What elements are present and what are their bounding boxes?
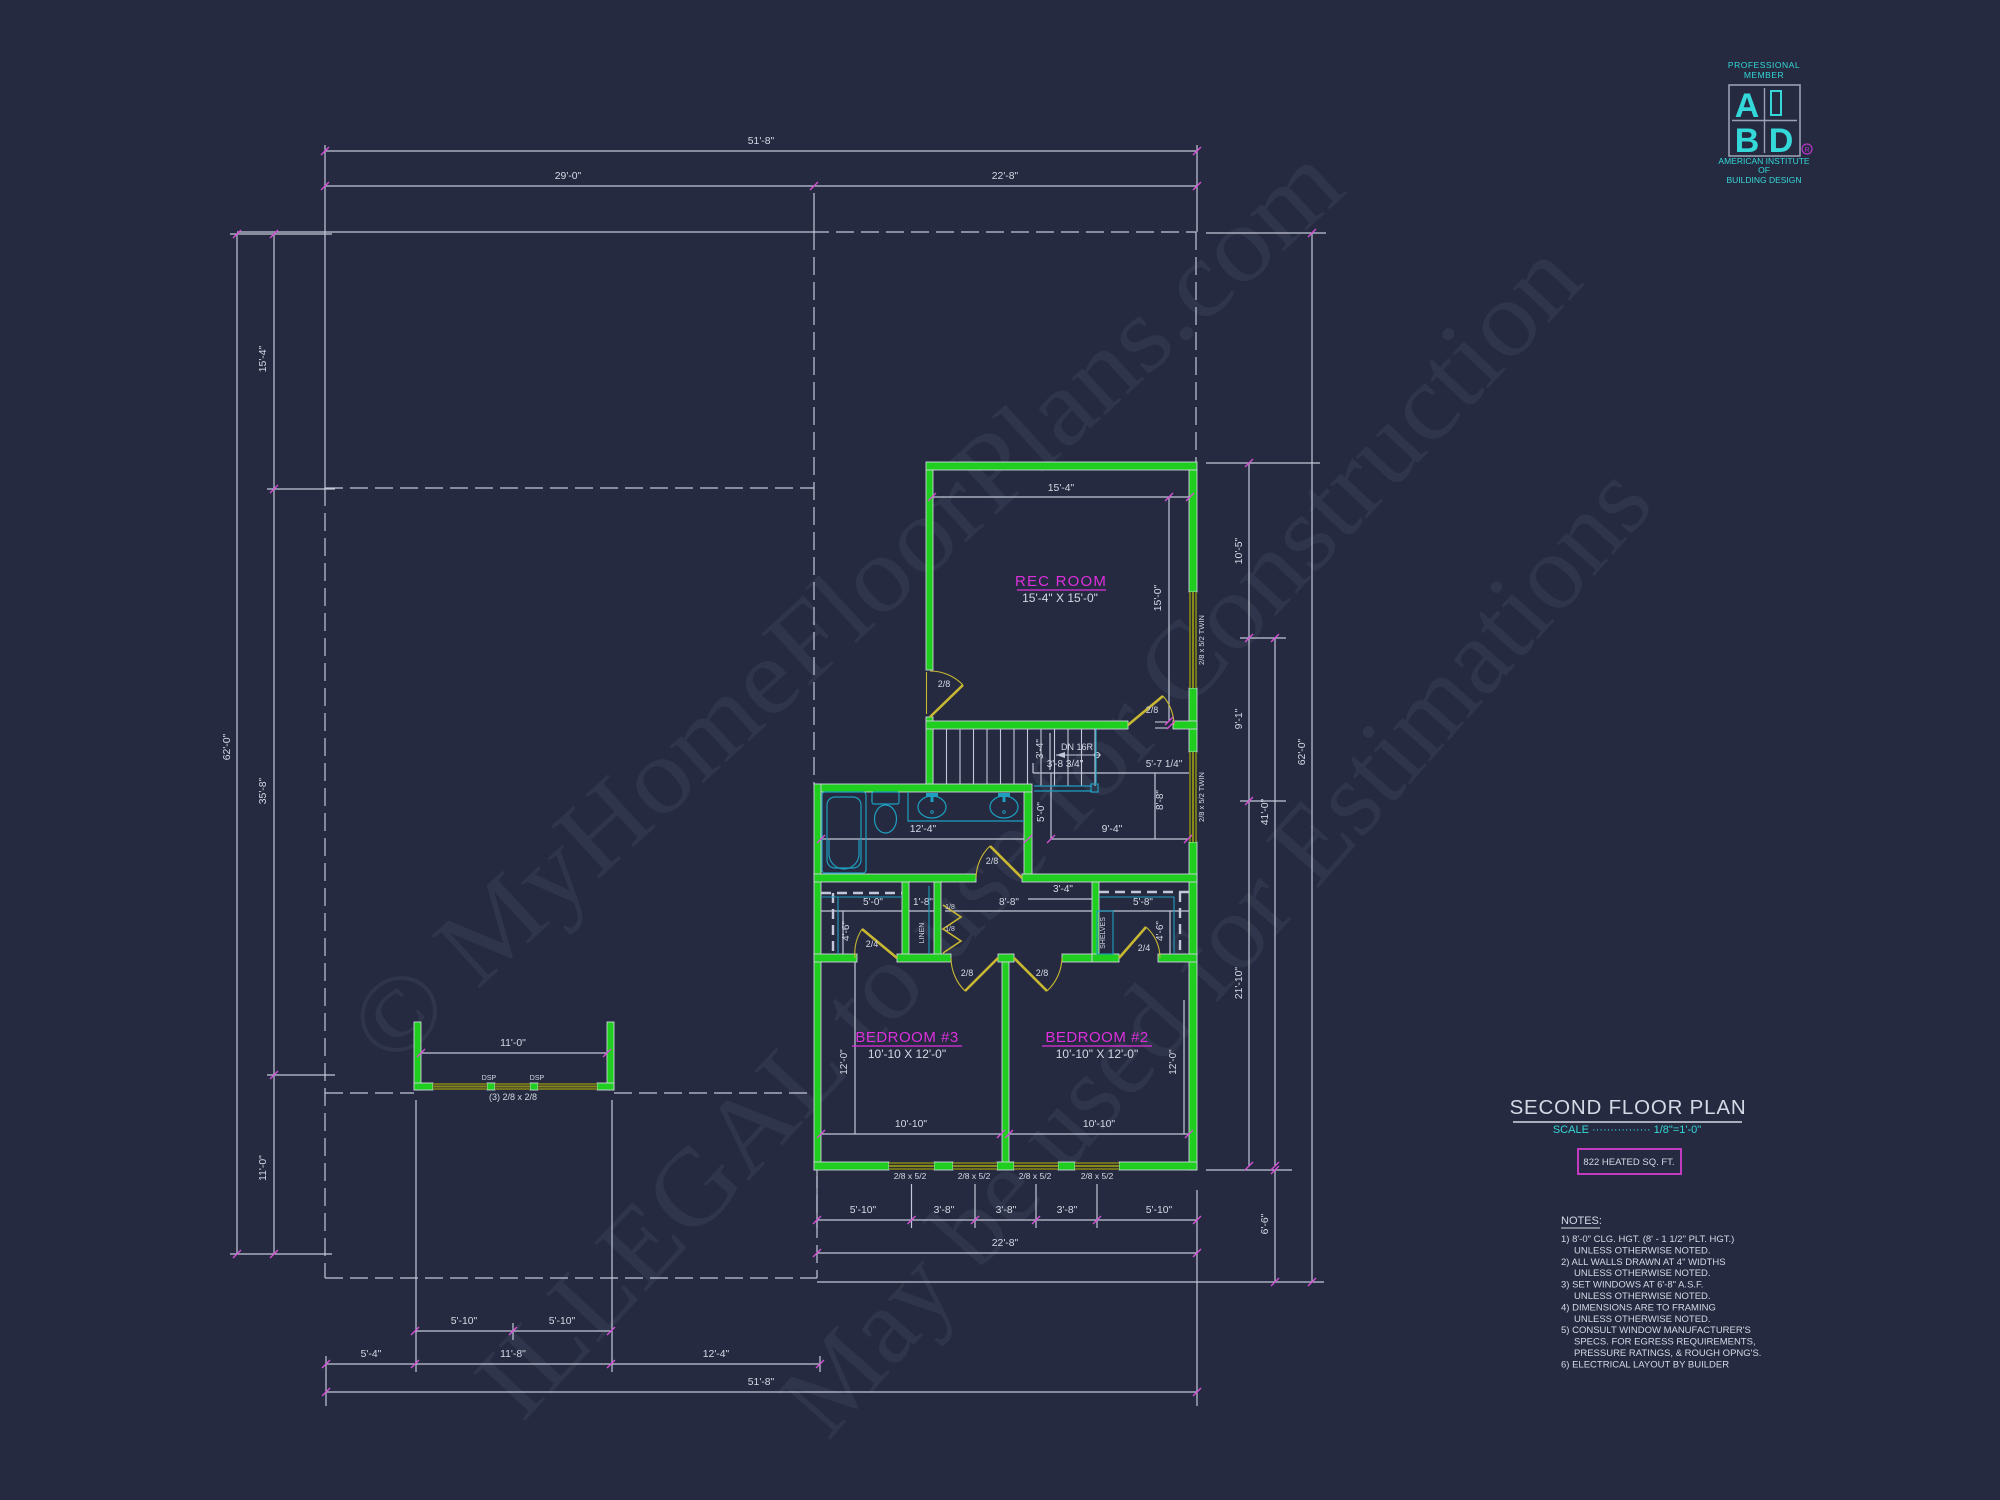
svg-text:10'-10": 10'-10": [895, 1119, 928, 1130]
svg-text:1'-8": 1'-8": [913, 897, 933, 908]
svg-text:3'-8": 3'-8": [934, 1205, 955, 1216]
svg-text:SPECS. FOR EGRESS REQUIREMENTS: SPECS. FOR EGRESS REQUIREMENTS,: [1574, 1337, 1756, 1348]
svg-text:11'-0": 11'-0": [500, 1038, 526, 1049]
svg-text:BEDROOM #2: BEDROOM #2: [1045, 1029, 1148, 1046]
svg-text:10'-10": 10'-10": [1083, 1119, 1116, 1130]
svg-text:2/8: 2/8: [1146, 705, 1159, 715]
svg-text:1) 8'-0" CLG. HGT. (8' - 1 1/: 1) 8'-0" CLG. HGT. (8' - 1 1/2" PLT. HGT…: [1561, 1234, 1734, 1245]
svg-text:41'-0": 41'-0": [1260, 798, 1271, 825]
svg-text:BUILDING DESIGN: BUILDING DESIGN: [1726, 175, 1801, 185]
svg-text:DN 16R: DN 16R: [1061, 742, 1094, 752]
svg-text:5) CONSULT WINDOW MANUFACTURER: 5) CONSULT WINDOW MANUFACTURER'S: [1561, 1325, 1751, 1336]
svg-text:12'-0": 12'-0": [839, 1049, 850, 1075]
svg-text:4'-6": 4'-6": [841, 921, 852, 941]
svg-text:UNLESS OTHERWISE NOTED.: UNLESS OTHERWISE NOTED.: [1574, 1268, 1711, 1279]
svg-text:5'-0": 5'-0": [863, 897, 883, 908]
svg-text:2/8 x 5/2: 2/8 x 5/2: [894, 1171, 927, 1181]
svg-text:62'-0": 62'-0": [1297, 738, 1308, 765]
svg-text:15'-0": 15'-0": [1153, 584, 1164, 611]
svg-text:5'-10": 5'-10": [850, 1205, 877, 1216]
svg-text:11'-0": 11'-0": [258, 1155, 269, 1181]
svg-text:A: A: [1735, 87, 1760, 125]
svg-text:35'-8": 35'-8": [258, 777, 269, 804]
svg-text:5'-4": 5'-4": [361, 1349, 382, 1360]
svg-text:51'-8": 51'-8": [748, 136, 775, 147]
svg-text:8'-8": 8'-8": [1155, 790, 1166, 810]
svg-text:21'-10": 21'-10": [1234, 967, 1245, 1000]
svg-text:5'-7 1/4": 5'-7 1/4": [1146, 759, 1183, 770]
svg-text:2/8 x 5/2 TWIN: 2/8 x 5/2 TWIN: [1197, 615, 1206, 665]
svg-text:9'-4": 9'-4": [1102, 824, 1123, 835]
svg-text:9'-1": 9'-1": [1234, 708, 1245, 729]
svg-text:822 HEATED SQ. FT.: 822 HEATED SQ. FT.: [1583, 1157, 1674, 1168]
svg-text:12'-4": 12'-4": [910, 824, 937, 835]
svg-text:2/8 x 5/2: 2/8 x 5/2: [958, 1171, 991, 1181]
svg-text:2/4: 2/4: [866, 939, 879, 949]
svg-text:22'-8": 22'-8": [992, 171, 1019, 182]
svg-text:22'-8": 22'-8": [992, 1238, 1019, 1249]
svg-text:2/8 x 5/2: 2/8 x 5/2: [1081, 1171, 1114, 1181]
svg-text:2/8: 2/8: [938, 679, 951, 689]
svg-text:15'-4" X 15'-0": 15'-4" X 15'-0": [1022, 591, 1098, 605]
svg-text:DSP: DSP: [530, 1075, 545, 1082]
svg-text:62'-0": 62'-0": [222, 733, 233, 760]
svg-text:5'-10": 5'-10": [451, 1316, 478, 1327]
svg-text:BEDROOM #3: BEDROOM #3: [855, 1029, 958, 1046]
svg-text:PRESSURE RATINGS, & ROUGH OPNG: PRESSURE RATINGS, & ROUGH OPNG'S.: [1574, 1348, 1761, 1359]
svg-text:UNLESS OTHERWISE NOTED.: UNLESS OTHERWISE NOTED.: [1574, 1245, 1711, 1256]
svg-text:29'-0": 29'-0": [555, 171, 582, 182]
svg-text:B: B: [1735, 122, 1760, 160]
svg-text:51'-8": 51'-8": [748, 1377, 775, 1388]
svg-text:12'-4": 12'-4": [703, 1349, 730, 1360]
svg-text:10'-5": 10'-5": [1234, 537, 1245, 564]
svg-text:4'-6": 4'-6": [1155, 921, 1166, 941]
svg-text:6'-6": 6'-6": [1260, 1213, 1271, 1234]
svg-text:1/8: 1/8: [945, 926, 955, 933]
svg-text:SHELVES: SHELVES: [1100, 917, 1107, 949]
svg-text:12'-0": 12'-0": [1168, 1049, 1179, 1075]
svg-text:D: D: [1769, 122, 1794, 160]
svg-text:3'-8 3/4": 3'-8 3/4": [1047, 759, 1084, 770]
svg-text:(3) 2/8 x 2/8: (3) 2/8 x 2/8: [489, 1092, 537, 1102]
svg-text:2) ALL WALLS DRAWN AT 4" WIDTH: 2) ALL WALLS DRAWN AT 4" WIDTHS: [1561, 1257, 1726, 1268]
svg-text:2/8 x 5/2 TWIN: 2/8 x 5/2 TWIN: [1197, 772, 1206, 822]
svg-text:PROFESSIONAL: PROFESSIONAL: [1728, 60, 1800, 70]
svg-text:6) ELECTRICAL LAYOUT BY BUILDE: 6) ELECTRICAL LAYOUT BY BUILDER: [1561, 1359, 1729, 1370]
svg-text:5'-0": 5'-0": [1036, 802, 1047, 822]
svg-text:15'-4": 15'-4": [1048, 483, 1075, 494]
svg-text:4) DIMENSIONS ARE TO FRAMING: 4) DIMENSIONS ARE TO FRAMING: [1561, 1302, 1716, 1313]
svg-text:10'-10" X 12'-0": 10'-10" X 12'-0": [1056, 1047, 1138, 1061]
svg-text:3) SET WINDOWS AT 6'-8" A.S.F.: 3) SET WINDOWS AT 6'-8" A.S.F.: [1561, 1280, 1703, 1291]
svg-text:2/8: 2/8: [1036, 968, 1049, 978]
svg-text:5'-10": 5'-10": [1146, 1205, 1173, 1216]
svg-text:2/8: 2/8: [961, 968, 974, 978]
svg-text:MEMBER: MEMBER: [1744, 70, 1784, 80]
svg-text:SECOND FLOOR PLAN: SECOND FLOOR PLAN: [1510, 1096, 1747, 1119]
svg-text:OF: OF: [1758, 165, 1770, 175]
svg-text:11'-8": 11'-8": [500, 1349, 526, 1360]
svg-text:2/8 x 5/2: 2/8 x 5/2: [1019, 1171, 1052, 1181]
svg-text:5'-8": 5'-8": [1133, 897, 1153, 908]
svg-text:SCALE ················ 1/8"=1': SCALE ················ 1/8"=1'-0": [1553, 1124, 1701, 1136]
svg-text:UNLESS OTHERWISE NOTED.: UNLESS OTHERWISE NOTED.: [1574, 1291, 1711, 1302]
svg-text:UNLESS OTHERWISE NOTED.: UNLESS OTHERWISE NOTED.: [1574, 1314, 1711, 1325]
svg-text:R: R: [1804, 147, 1809, 154]
svg-text:2/8: 2/8: [986, 856, 999, 866]
svg-text:NOTES:: NOTES:: [1561, 1215, 1602, 1227]
svg-text:REC ROOM: REC ROOM: [1015, 573, 1107, 590]
svg-text:3'-4": 3'-4": [1053, 884, 1073, 895]
svg-text:LINEN: LINEN: [919, 923, 926, 944]
svg-text:2/4: 2/4: [1138, 943, 1151, 953]
svg-text:DSP: DSP: [482, 1075, 497, 1082]
svg-text:3'-8": 3'-8": [1057, 1205, 1078, 1216]
svg-text:10'-10 X 12'-0": 10'-10 X 12'-0": [868, 1047, 946, 1061]
svg-text:15'-4": 15'-4": [258, 345, 269, 372]
svg-text:5'-10": 5'-10": [549, 1316, 576, 1327]
svg-text:3'-8": 3'-8": [996, 1205, 1017, 1216]
svg-text:1/8: 1/8: [945, 904, 955, 911]
svg-text:8'-8": 8'-8": [999, 897, 1019, 908]
